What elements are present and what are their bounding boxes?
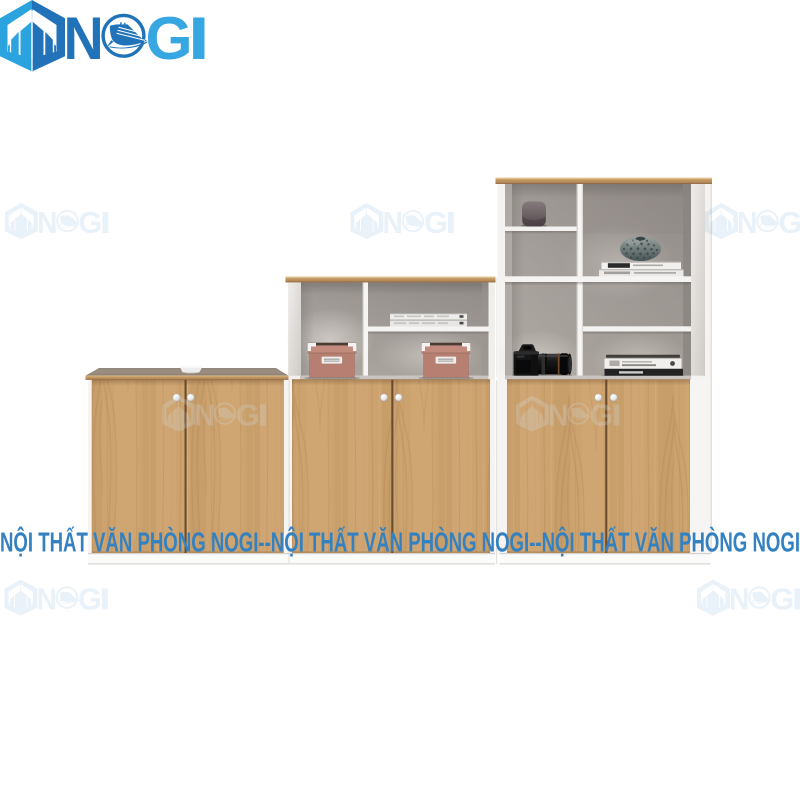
svg-text:NỘI THẤT VĂN PHÒNG NOGI--NỘI T: NỘI THẤT VĂN PHÒNG NOGI--NỘI THẤT VĂN PH… bbox=[0, 526, 800, 558]
svg-text:N: N bbox=[64, 5, 104, 73]
svg-text:N: N bbox=[37, 206, 57, 240]
svg-text:G: G bbox=[78, 206, 102, 240]
svg-text:G: G bbox=[146, 4, 193, 72]
svg-text:I: I bbox=[100, 205, 111, 239]
svg-text:I: I bbox=[188, 4, 210, 72]
